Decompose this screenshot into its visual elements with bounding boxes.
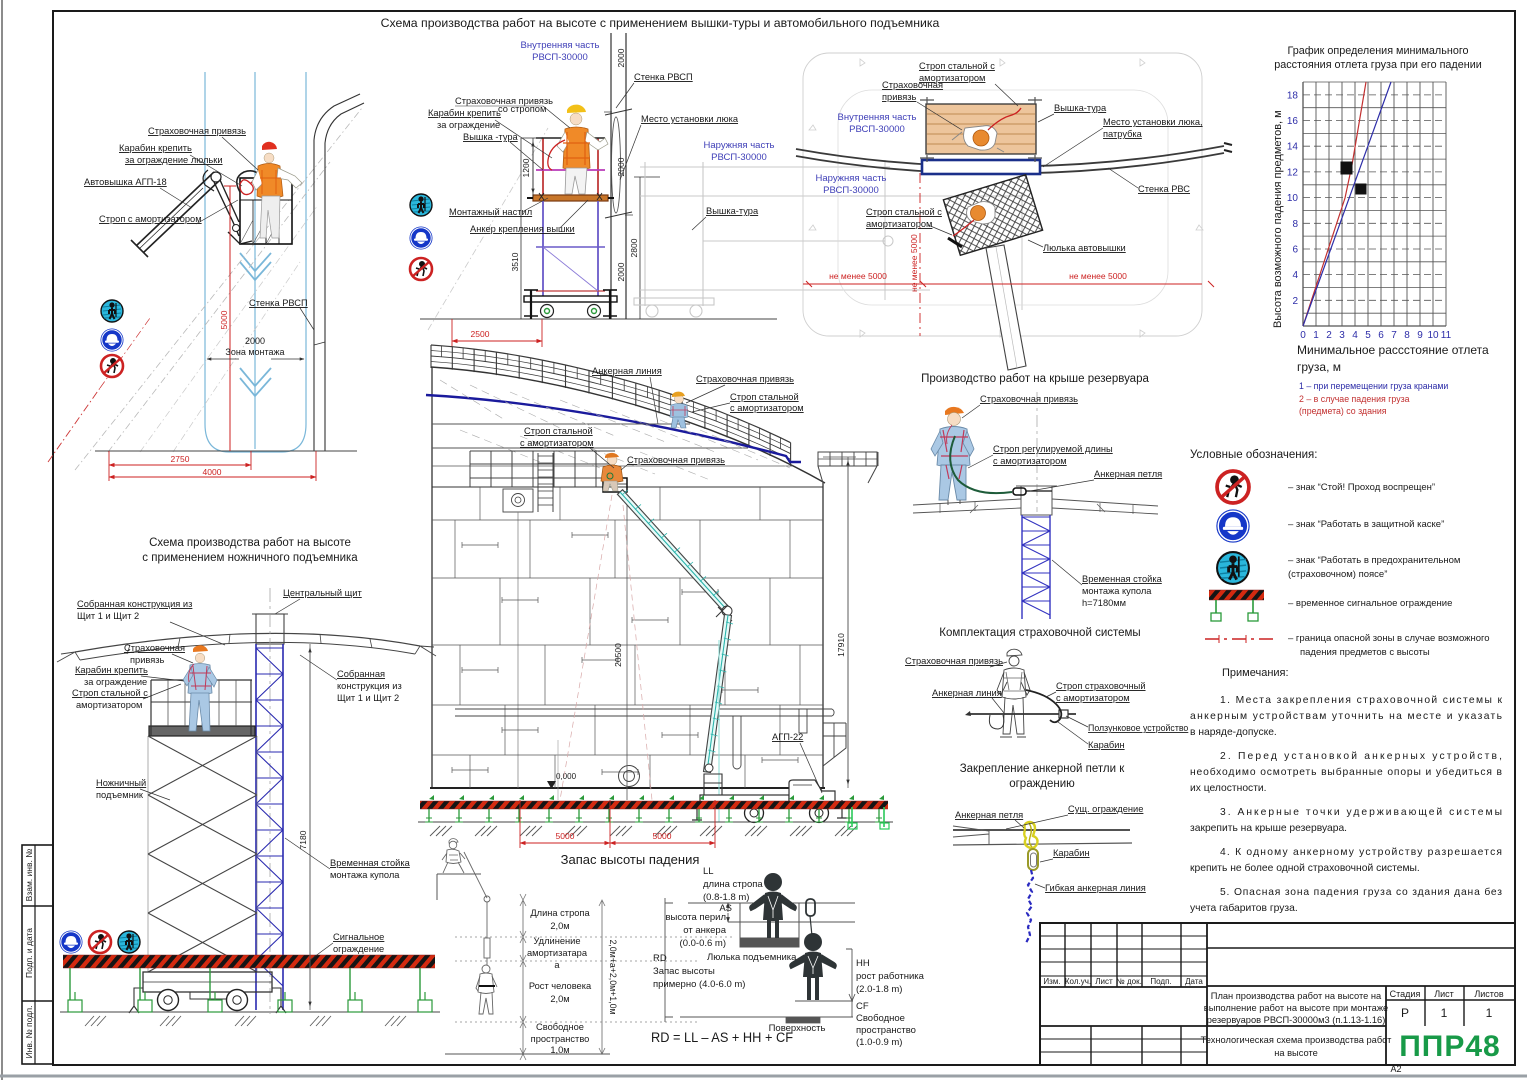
svg-text:амортизатором: амортизатором xyxy=(76,700,142,710)
svg-text:Закрепление анкерной петли к: Закрепление анкерной петли к xyxy=(960,763,1126,775)
svg-text:Строп стальной: Строп стальной xyxy=(524,426,593,436)
svg-text:Вышка-тура: Вышка-тура xyxy=(706,206,759,216)
svg-text:ограждению: ограждению xyxy=(1009,778,1075,790)
svg-text:Стенка РВСП: Стенка РВСП xyxy=(634,72,693,82)
svg-text:РВСП-30000: РВСП-30000 xyxy=(711,152,767,163)
svg-text:Автовышка АГП-18: Автовышка АГП-18 xyxy=(84,177,167,187)
svg-text:Гибкая анкерная линия: Гибкая анкерная линия xyxy=(1045,883,1146,893)
svg-text:17910: 17910 xyxy=(836,633,846,657)
svg-text:Монтажный настил: Монтажный настил xyxy=(449,207,532,217)
svg-text:Наружняя часть: Наружняя часть xyxy=(816,173,887,184)
svg-text:– знак “Работать в предохранит: – знак “Работать в предохранительном xyxy=(1288,555,1460,566)
svg-text:РВСП-30000: РВСП-30000 xyxy=(823,185,879,196)
svg-text:Ползунковое устройство: Ползунковое устройство xyxy=(1088,723,1188,733)
svg-text:Анкер крепления вышки: Анкер крепления вышки xyxy=(470,224,575,234)
svg-text:HH: HH xyxy=(856,958,870,969)
svg-text:5: 5 xyxy=(1365,330,1371,341)
svg-text:Страховочная привязь: Страховочная привязь xyxy=(148,126,246,136)
svg-text:Запас высоты падения: Запас высоты падения xyxy=(561,852,700,867)
svg-text:6: 6 xyxy=(1378,330,1384,341)
svg-text:Центральный щит: Центральный щит xyxy=(283,588,362,598)
svg-text:(страховочном) поясе”: (страховочном) поясе” xyxy=(1288,569,1387,580)
svg-text:Схема производства работ на вы: Схема производства работ на высоте с при… xyxy=(381,16,940,30)
svg-text:8: 8 xyxy=(1292,219,1298,230)
svg-text:со стропом: со стропом xyxy=(498,104,546,114)
svg-text:(0.8-1.8 m): (0.8-1.8 m) xyxy=(703,892,749,903)
svg-text:1: 1 xyxy=(1441,1006,1448,1020)
svg-text:высота перил: высота перил xyxy=(665,912,726,923)
svg-text:Щит 1 и Щит 2: Щит 1 и Щит 2 xyxy=(337,693,399,703)
svg-text:График определения минимальног: График определения минимального xyxy=(1287,45,1468,57)
svg-text:РВСП-30000: РВСП-30000 xyxy=(532,52,588,63)
svg-text:амортизатара: амортизатара xyxy=(527,948,588,958)
svg-text:Подп. и дата: Подп. и дата xyxy=(24,928,34,978)
svg-text:Комплектация страховочной сист: Комплектация страховочной системы xyxy=(939,627,1140,639)
svg-text:Страховочная: Страховочная xyxy=(882,80,943,90)
svg-text:не менее 5000: не менее 5000 xyxy=(1069,271,1127,281)
svg-text:1,0м: 1,0м xyxy=(550,1045,569,1055)
svg-text:Лист: Лист xyxy=(1095,977,1113,986)
svg-text:1 – при перемещении груза кран: 1 – при перемещении груза кранами xyxy=(1299,381,1448,391)
svg-text:Лист: Лист xyxy=(1434,989,1454,999)
svg-text:RD = LL – AS + HH + CF: RD = LL – AS + HH + CF xyxy=(651,1030,793,1045)
svg-text:необходимо осмотреть выбранные: необходимо осмотреть выбранные опоры и у… xyxy=(1190,766,1503,778)
svg-text:Строп стальной: Строп стальной xyxy=(730,392,799,402)
svg-text:2000: 2000 xyxy=(616,48,626,67)
svg-text:Вышка -тура: Вышка -тура xyxy=(463,132,519,142)
svg-text:Запас высоты: Запас высоты xyxy=(653,966,715,977)
svg-text:Строп стальной с: Строп стальной с xyxy=(866,207,942,217)
svg-text:2: 2 xyxy=(1326,330,1332,341)
svg-text:2,0м: 2,0м xyxy=(550,921,569,931)
svg-text:за ограждение: за ограждение xyxy=(84,677,147,687)
svg-text:2: 2 xyxy=(1292,296,1298,307)
svg-text:с амортизатором: с амортизатором xyxy=(730,403,804,413)
svg-text:2000: 2000 xyxy=(616,157,626,176)
svg-text:LL: LL xyxy=(703,866,714,877)
svg-text:рост работника: рост работника xyxy=(856,971,925,982)
svg-text:Карабин крепить: Карабин крепить xyxy=(119,143,192,153)
svg-text:патрубка: патрубка xyxy=(1103,129,1143,139)
svg-text:от анкера: от анкера xyxy=(683,925,726,936)
svg-text:выполнение работ на высоте при: выполнение работ на высоте при монтаже xyxy=(1204,1003,1388,1013)
svg-text:падения предметов с высоты: падения предметов с высоты xyxy=(1300,647,1430,658)
svg-text:Карабин: Карабин xyxy=(1088,740,1125,750)
svg-text:(2.0-1.8 m): (2.0-1.8 m) xyxy=(856,984,902,995)
svg-text:Зона монтажа: Зона монтажа xyxy=(225,347,284,357)
svg-text:Страховочная: Страховочная xyxy=(124,643,185,653)
svg-text:Р: Р xyxy=(1401,1006,1409,1020)
svg-text:Анкерная петля: Анкерная петля xyxy=(955,810,1023,820)
svg-text:(0.0-0.6 m): (0.0-0.6 m) xyxy=(680,938,726,949)
svg-text:CF: CF xyxy=(856,1001,869,1012)
svg-text:5000: 5000 xyxy=(653,831,672,841)
svg-text:3: 3 xyxy=(1339,330,1345,341)
svg-text:– знак “Стой! Проход воспрещен: – знак “Стой! Проход воспрещен” xyxy=(1288,482,1435,493)
svg-text:АГП-22: АГП-22 xyxy=(772,732,803,742)
svg-text:резервуаров РВСП-30000м3 (п.1.: резервуаров РВСП-30000м3 (п.1.13-1.16) xyxy=(1207,1015,1386,1025)
svg-text:Место установки люка,: Место установки люка, xyxy=(1103,117,1203,127)
svg-text:А2: А2 xyxy=(1390,1064,1401,1074)
svg-text:на высоте: на высоте xyxy=(1274,1048,1318,1058)
svg-text:Анкерная линия: Анкерная линия xyxy=(932,688,1002,698)
svg-text:10: 10 xyxy=(1427,330,1439,341)
svg-text:4. К одному анкерному устр: 4. К одному анкерному устройству разреша… xyxy=(1220,847,1502,858)
svg-text:2 – в случае падения груза: 2 – в случае падения груза xyxy=(1299,394,1410,404)
svg-text:2800: 2800 xyxy=(629,238,639,257)
svg-text:Страховочная привязь: Страховочная привязь xyxy=(980,394,1078,404)
svg-text:RD: RD xyxy=(653,953,667,964)
svg-text:конструкция из: конструкция из xyxy=(337,681,402,691)
svg-text:привязь: привязь xyxy=(882,92,917,102)
svg-text:амортизатором: амортизатором xyxy=(866,219,932,229)
svg-text:Инв. № подл.: Инв. № подл. xyxy=(24,1006,34,1059)
svg-text:2000: 2000 xyxy=(245,336,265,346)
svg-text:Удлинение: Удлинение xyxy=(533,936,580,946)
svg-text:Технологическая схема производ: Технологическая схема производства работ xyxy=(1201,1035,1393,1045)
svg-text:Рост человека: Рост человека xyxy=(529,981,592,991)
svg-text:монтажа купола: монтажа купола xyxy=(330,870,400,880)
svg-text:14: 14 xyxy=(1287,142,1299,153)
svg-text:анкерным устройствам уточнить: анкерным устройствам уточнить на месте и… xyxy=(1190,711,1502,722)
svg-text:18: 18 xyxy=(1287,90,1299,101)
svg-text:0: 0 xyxy=(1300,330,1306,341)
svg-text:Строп страховочный: Строп страховочный xyxy=(1056,681,1146,691)
svg-text:20500: 20500 xyxy=(613,643,623,667)
svg-text:(предмета) со здания: (предмета) со здания xyxy=(1299,406,1387,416)
svg-text:Карабин: Карабин xyxy=(1053,848,1090,858)
svg-text:Сигнальное: Сигнальное xyxy=(333,932,384,942)
svg-text:2750: 2750 xyxy=(171,454,190,464)
svg-text:2500: 2500 xyxy=(471,329,490,339)
svg-text:1200: 1200 xyxy=(521,158,531,177)
svg-text:Высота возможного падения пред: Высота возможного падения предметов, м xyxy=(1272,110,1284,328)
svg-text:груза, м: груза, м xyxy=(1297,360,1341,374)
svg-text:2,0м: 2,0м xyxy=(550,994,569,1004)
svg-text:пространство: пространство xyxy=(856,1025,916,1036)
svg-text:10: 10 xyxy=(1287,193,1299,204)
svg-text:– знак “Работать в защитной ка: – знак “Работать в защитной каске” xyxy=(1288,519,1444,530)
svg-text:2,0м+а+2,0м+1,0м: 2,0м+а+2,0м+1,0м xyxy=(608,939,618,1014)
svg-text:примерно (4.0-6.0 m): примерно (4.0-6.0 m) xyxy=(653,979,745,990)
svg-text:Стадия: Стадия xyxy=(1390,989,1421,999)
svg-text:длина стропа: длина стропа xyxy=(703,879,763,890)
svg-text:Собранная конструкция из: Собранная конструкция из xyxy=(77,599,192,609)
svg-text:12: 12 xyxy=(1287,167,1299,178)
svg-text:Щит 1 и Щит 2: Щит 1 и Щит 2 xyxy=(77,611,139,621)
svg-text:в наряде-допуске.: в наряде-допуске. xyxy=(1190,727,1277,738)
svg-text:Страховочная привязь: Страховочная привязь xyxy=(696,374,794,384)
svg-text:4: 4 xyxy=(1352,330,1358,341)
svg-text:План производства работ на выс: План производства работ на высоте на xyxy=(1211,991,1382,1001)
svg-text:7180: 7180 xyxy=(298,830,308,849)
svg-text:пространство: пространство xyxy=(531,1034,590,1044)
svg-text:Сущ. ограждение: Сущ. ограждение xyxy=(1068,804,1143,814)
svg-text:№ док.: № док. xyxy=(1116,977,1142,986)
svg-text:ограждение: ограждение xyxy=(333,944,384,954)
svg-text:Строп регулируемой длины: Строп регулируемой длины xyxy=(993,444,1113,454)
svg-text:Собранная: Собранная xyxy=(337,669,385,679)
svg-text:Подп.: Подп. xyxy=(1150,977,1171,986)
svg-text:0,000: 0,000 xyxy=(556,772,577,781)
svg-text:Кол.уч.: Кол.уч. xyxy=(1065,977,1091,986)
svg-text:Взам. инв. №: Взам. инв. № xyxy=(24,849,34,902)
svg-text:монтажа купола: монтажа купола xyxy=(1082,586,1152,596)
svg-text:РВСП-30000: РВСП-30000 xyxy=(849,124,905,135)
svg-text:Примечания:: Примечания: xyxy=(1222,667,1289,679)
svg-text:с амортизатором: с амортизатором xyxy=(993,456,1067,466)
svg-text:Люлька подъемника: Люлька подъемника xyxy=(707,952,797,963)
svg-text:Внутренняя часть: Внутренняя часть xyxy=(838,112,917,123)
svg-text:Производство работ на крыше ре: Производство работ на крыше резервуара xyxy=(921,373,1149,385)
svg-text:3. Анкерные точки удержи: 3. Анкерные точки удерживающей системы xyxy=(1220,807,1502,818)
svg-text:Страховочная привязь: Страховочная привязь xyxy=(905,656,1003,666)
svg-text:Дата: Дата xyxy=(1185,977,1203,986)
svg-text:Минимальное рассстояние отлета: Минимальное рассстояние отлета xyxy=(1297,343,1489,357)
svg-text:Свободное: Свободное xyxy=(856,1013,905,1024)
svg-text:учета габаритов груза.: учета габаритов груза. xyxy=(1190,902,1298,914)
svg-text:ППР48: ППР48 xyxy=(1399,1030,1501,1063)
svg-text:привязь: привязь xyxy=(130,655,165,665)
svg-text:Анкерная петля: Анкерная петля xyxy=(1094,469,1162,479)
svg-text:6: 6 xyxy=(1292,245,1298,256)
svg-text:Листов: Листов xyxy=(1474,989,1503,999)
svg-text:9: 9 xyxy=(1417,330,1423,341)
svg-text:Карабин крепить: Карабин крепить xyxy=(428,108,501,118)
svg-text:Внутренняя часть: Внутренняя часть xyxy=(521,40,600,51)
svg-text:Свободное: Свободное xyxy=(536,1022,584,1032)
svg-text:16: 16 xyxy=(1287,116,1299,127)
svg-text:5000: 5000 xyxy=(556,831,575,841)
svg-text:3510: 3510 xyxy=(510,252,520,271)
svg-text:Изм.: Изм. xyxy=(1043,977,1060,986)
svg-text:с амортизатором: с амортизатором xyxy=(1056,693,1130,703)
svg-text:Условные обозначения:: Условные обозначения: xyxy=(1190,449,1317,461)
svg-text:Страховочная привязь: Страховочная привязь xyxy=(627,455,725,465)
svg-text:за ограждение: за ограждение xyxy=(437,120,500,130)
svg-text:Длина стропа: Длина стропа xyxy=(530,908,590,918)
svg-text:7: 7 xyxy=(1391,330,1397,341)
svg-text:Место установки люка: Место установки люка xyxy=(641,114,739,124)
svg-text:закрепить на крыше резервуара.: закрепить на крыше резервуара. xyxy=(1190,823,1347,834)
svg-text:8: 8 xyxy=(1404,330,1410,341)
svg-text:11: 11 xyxy=(1441,330,1452,341)
svg-text:Анкерная линия: Анкерная линия xyxy=(592,366,662,376)
svg-text:с применением ножничного подъе: с применением ножничного подъемника xyxy=(142,552,358,564)
svg-text:Временная стойка: Временная стойка xyxy=(1082,574,1163,584)
svg-text:Строп стальной с: Строп стальной с xyxy=(919,61,995,71)
svg-text:подъемник: подъемник xyxy=(96,790,144,800)
svg-text:крепить не более одной страхов: крепить не более одной страховочной сист… xyxy=(1190,862,1420,874)
svg-text:1. Места закрепления страхо: 1. Места закрепления страховочной систем… xyxy=(1220,695,1502,706)
svg-text:1: 1 xyxy=(1313,330,1319,341)
svg-text:1: 1 xyxy=(1486,1006,1493,1020)
svg-text:2000: 2000 xyxy=(616,262,626,281)
svg-text:не менее 5000: не менее 5000 xyxy=(829,271,887,281)
svg-text:Схема производства работ на вы: Схема производства работ на высоте xyxy=(149,537,351,549)
svg-text:с амортизатором: с амортизатором xyxy=(520,438,594,448)
svg-text:5. Опасная зона падения груза: 5. Опасная зона падения груза со здания … xyxy=(1220,886,1502,898)
svg-text:Стенка РВСП: Стенка РВСП xyxy=(249,298,308,308)
svg-text:Люлька автовышки: Люлька автовышки xyxy=(1043,243,1126,253)
svg-text:Ножничный: Ножничный xyxy=(96,778,146,788)
svg-text:Карабин крепить: Карабин крепить xyxy=(75,665,148,675)
svg-text:расстояния отлета груза при ег: расстояния отлета груза при его падении xyxy=(1274,59,1482,71)
svg-text:Временная стойка: Временная стойка xyxy=(330,858,411,868)
svg-text:4: 4 xyxy=(1292,270,1298,281)
svg-text:h=7180мм: h=7180мм xyxy=(1082,598,1126,608)
svg-text:– граница опасной зоны в случа: – граница опасной зоны в случае возможно… xyxy=(1288,633,1490,644)
svg-text:5000: 5000 xyxy=(219,310,229,329)
svg-text:– временное сигнальное огражде: – временное сигнальное ограждение xyxy=(1288,598,1452,609)
svg-text:Вышка-тура: Вышка-тура xyxy=(1054,103,1107,113)
svg-text:Стенка РВС: Стенка РВС xyxy=(1138,184,1190,194)
svg-text:Строп стальной с: Строп стальной с xyxy=(72,688,148,698)
svg-text:за ограждение люльки: за ограждение люльки xyxy=(125,155,223,165)
svg-text:Наружняя часть: Наружняя часть xyxy=(704,140,775,151)
svg-text:4000: 4000 xyxy=(203,467,222,477)
svg-text:их целостности.: их целостности. xyxy=(1190,783,1267,794)
svg-text:Строп с амортизатором: Строп с амортизатором xyxy=(99,214,202,224)
svg-text:не менее 5000: не менее 5000 xyxy=(909,234,919,292)
svg-text:а: а xyxy=(554,960,560,970)
svg-text:(1.0-0.9 m): (1.0-0.9 m) xyxy=(856,1037,902,1048)
